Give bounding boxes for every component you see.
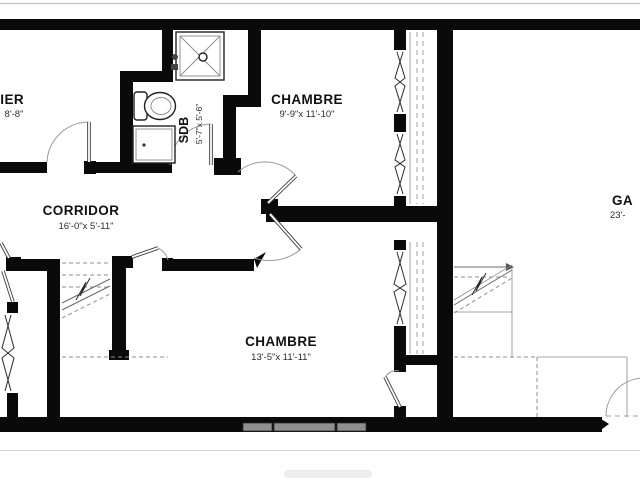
room-dims-bedroom-top: 9'-9"x 11'-10" (279, 109, 334, 120)
wall (120, 71, 133, 163)
wall (0, 19, 640, 30)
vanity-icon (133, 126, 175, 163)
wall-post (121, 256, 133, 268)
wall (266, 206, 450, 222)
room-label-bedroom-bottom: CHAMBRE (245, 334, 317, 349)
room-label-bathroom: SDB (177, 117, 191, 143)
wall-post (394, 406, 406, 417)
room-dims-bathroom: 5'-7"x 5'-6" (194, 104, 204, 144)
wall-post (7, 302, 18, 313)
wall-post (394, 240, 406, 250)
wall-post (394, 114, 406, 132)
wall (214, 158, 241, 175)
wall-post (394, 30, 406, 50)
room-label-corridor: CORRIDOR (43, 203, 120, 218)
wall (0, 162, 47, 173)
shower-valve (171, 64, 178, 70)
wall-post (7, 393, 18, 404)
shower-icon (171, 32, 224, 80)
wall (399, 355, 439, 365)
watermark-pill (284, 470, 372, 478)
room-dims-bedroom-bottom: 13'-5"x 11'-11" (251, 352, 311, 363)
room-label-garage-partial: GA (612, 193, 633, 208)
wall-post (394, 326, 406, 342)
plan-background (0, 0, 640, 480)
wall (248, 30, 261, 102)
wall-post (394, 196, 406, 208)
bottom-wall-window (243, 423, 366, 431)
shower-valve (172, 54, 178, 60)
wall (437, 30, 453, 417)
room-dims-corridor: 16'-0"x 5'-11" (58, 221, 113, 232)
toilet-icon (134, 92, 176, 120)
room-dims-garage-partial: 23'- (610, 210, 626, 221)
room-dims-stairs-partial: 8'-8" (5, 109, 24, 120)
wall (223, 100, 236, 162)
wall (109, 350, 129, 360)
wall (162, 259, 254, 271)
room-label-stairs-partial: LIER (0, 92, 24, 107)
wall (47, 259, 60, 417)
wall (112, 256, 126, 360)
wall (7, 404, 18, 417)
floor-plan: CHAMBRE 9'-9"x 11'-10" CORRIDOR 16'-0"x … (0, 0, 640, 480)
vanity-knob (142, 143, 145, 146)
room-label-bedroom-top: CHAMBRE (271, 92, 343, 107)
